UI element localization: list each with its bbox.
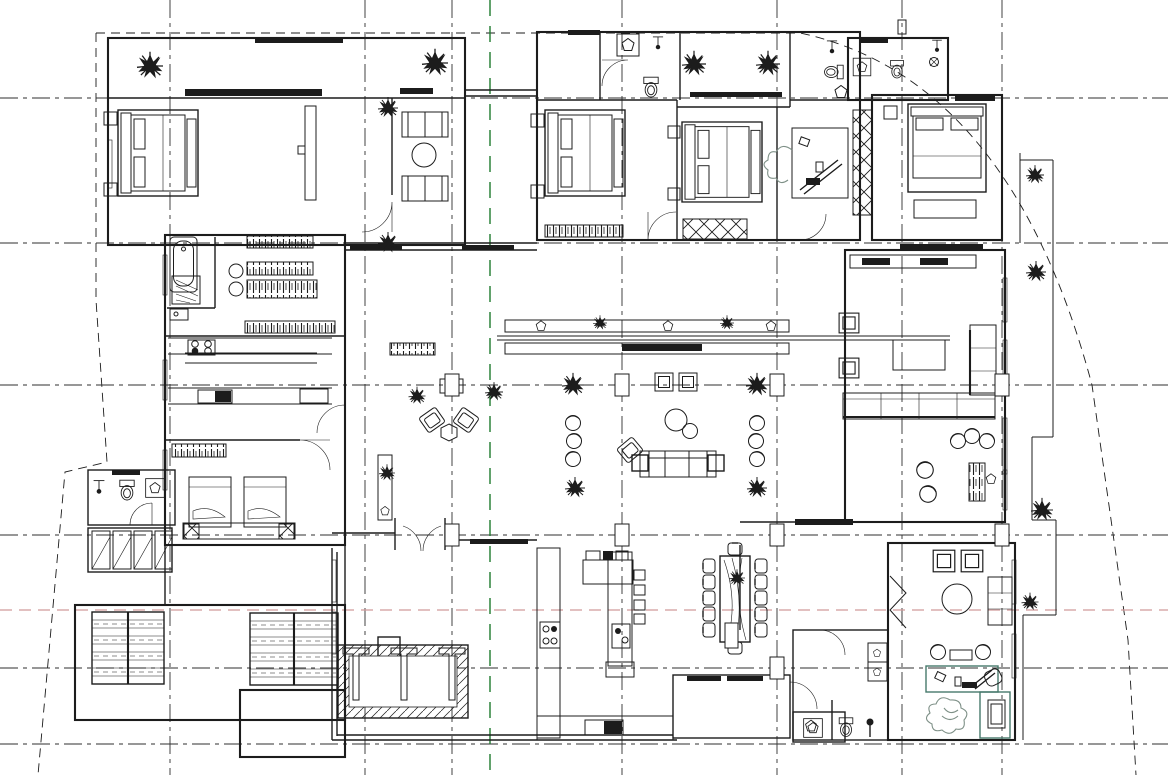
bedroom-4-furniture (884, 104, 986, 218)
window-glazing (568, 30, 600, 35)
dining-chair (703, 607, 715, 621)
dining-chair (755, 559, 767, 573)
twin-bedroom-furniture (183, 477, 295, 539)
window-glazing (900, 244, 983, 249)
dining-chair (755, 607, 767, 621)
hatched-wardrobe (969, 463, 985, 501)
wc-south-furniture (806, 720, 817, 731)
hatched-wardrobe (247, 280, 317, 298)
floor-plan-canvas: Architectural floor plan (CAD line drawi… (0, 0, 1168, 775)
structural-column-icon (445, 374, 459, 396)
hatched-wardrobe (172, 444, 226, 457)
hatched-wardrobe (545, 225, 623, 237)
bathroom-center-furniture (617, 34, 663, 97)
hatched-wardrobe (245, 321, 335, 333)
plant-icon (720, 315, 734, 329)
floor-plan-page: Architectural floor plan (CAD line drawi… (0, 0, 1168, 775)
dining-chair (755, 575, 767, 589)
window-glazing (955, 96, 995, 101)
structural-column-icon (770, 524, 784, 546)
plant-icon (747, 477, 767, 498)
plant-icon (1022, 593, 1039, 610)
dining-chair (703, 591, 715, 605)
dining-chair (755, 623, 767, 637)
kitchen-west-furniture (188, 340, 328, 403)
plant-icon (593, 315, 607, 329)
window-glazing (112, 470, 140, 475)
window-glazing (185, 89, 322, 96)
structural-column-icon (445, 524, 459, 546)
plant-icon (409, 387, 426, 404)
cross-hatched-closet (683, 219, 747, 239)
plant-icon (378, 97, 398, 118)
plant-icon (682, 51, 706, 76)
window-glazing (400, 88, 433, 94)
hatched-wardrobe (390, 343, 435, 355)
bedroom-3-furniture (668, 122, 762, 202)
plant-icon (379, 464, 395, 480)
plant-icon (1026, 165, 1044, 183)
window-glazing (470, 539, 528, 544)
terrace-edge-east (1020, 153, 1056, 740)
plant-icon (137, 52, 163, 79)
folding-door (890, 576, 906, 628)
plant-icon (565, 477, 585, 498)
bedroom-1-furniture (104, 106, 316, 200)
plant-icon (1031, 498, 1053, 521)
structural-column-icon (995, 374, 1009, 396)
structural-columns (445, 374, 1009, 679)
dining-chair (755, 591, 767, 605)
walk-in-closet-furniture (229, 264, 243, 296)
wardrobes-and-rugs (172, 110, 985, 539)
window-glazing (860, 38, 888, 43)
structural-column-icon (770, 374, 784, 396)
flue-column (725, 623, 738, 648)
window-glazing (255, 38, 343, 43)
bedroom-2-furniture (531, 110, 625, 198)
window-glazing (690, 92, 782, 97)
hall-seating (378, 373, 767, 520)
sunken-court (338, 645, 468, 718)
window-glazing (727, 676, 763, 681)
south-terrace (673, 675, 790, 738)
window-bands (108, 30, 1016, 681)
bathroom-northeast-2 (848, 38, 948, 100)
staircases (92, 612, 338, 685)
window-glazing (795, 519, 853, 525)
window-glazing (687, 676, 721, 681)
bathroom-southwest-furniture (94, 479, 165, 500)
site-boundary-line (38, 33, 107, 775)
dining-chair (703, 623, 715, 637)
study-southeast-furniture (926, 550, 1012, 738)
wing-northwest (108, 38, 465, 245)
kitchen-south-furniture (537, 548, 673, 740)
window-glazing (462, 245, 514, 250)
door-arcs (130, 60, 906, 709)
plant-icon (562, 373, 584, 396)
dining-chair (703, 575, 715, 589)
plant-icon (729, 569, 745, 585)
structural-column-icon (615, 524, 629, 546)
structural-column-icon (770, 657, 784, 679)
structural-column-icon (995, 524, 1009, 546)
sitting-alcove-furniture (402, 112, 448, 201)
family-study-southeast (888, 543, 1015, 740)
plant-icon (1026, 261, 1046, 282)
cross-hatched-closet (184, 524, 199, 539)
storage-cells (92, 531, 172, 569)
plant-icon (756, 51, 780, 76)
bathroom-southeast-furniture (804, 643, 887, 737)
structural-column-icon (615, 374, 629, 396)
plant-icon (422, 49, 448, 76)
stair-block-extension (240, 690, 345, 757)
plant-icon (746, 373, 768, 396)
stair-block (75, 605, 345, 720)
cross-hatched-closet (853, 110, 872, 215)
dining-chair (703, 559, 715, 573)
hatched-wardrobe (247, 262, 313, 275)
hatched-wardrobe (247, 236, 313, 248)
